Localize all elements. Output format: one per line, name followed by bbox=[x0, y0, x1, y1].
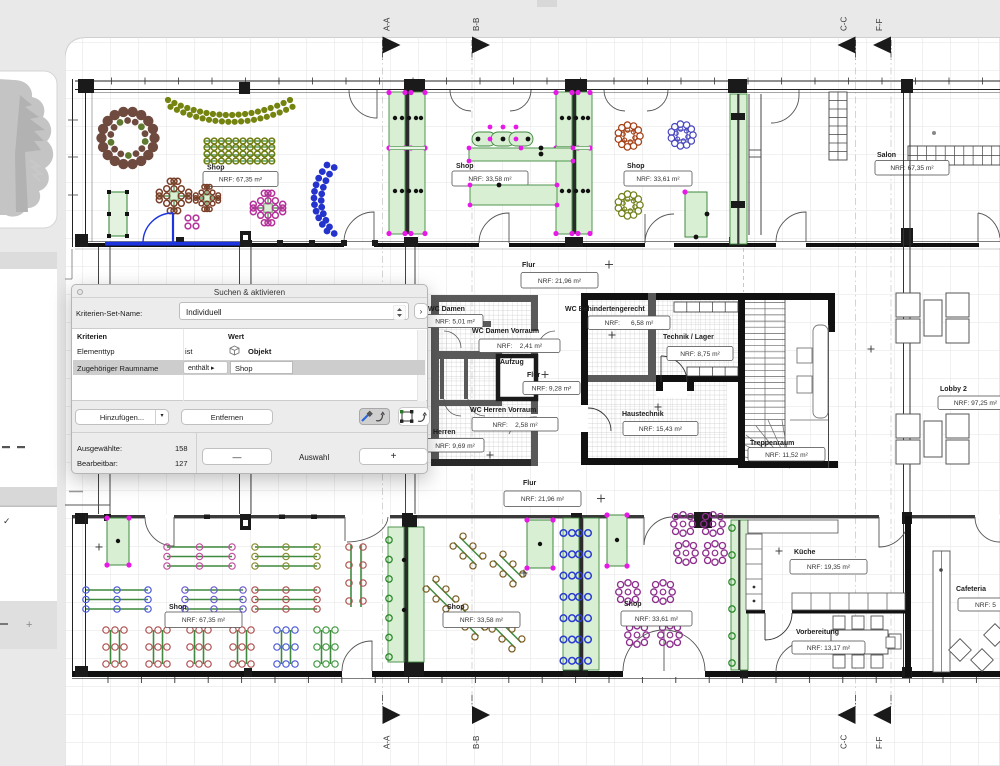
svg-text:NRF: 15,43 m²: NRF: 15,43 m² bbox=[639, 426, 683, 433]
svg-text:WC Behindertengerecht: WC Behindertengerecht bbox=[565, 306, 645, 313]
svg-text:Shop: Shop bbox=[624, 601, 642, 608]
svg-text:WC Damen Vorraum: WC Damen Vorraum bbox=[472, 328, 539, 335]
svg-text:Lobby 2: Lobby 2 bbox=[940, 386, 967, 393]
svg-text:NRF: 13,17 m²: NRF: 13,17 m² bbox=[807, 645, 851, 652]
svg-text:NRF: 97,25 m²: NRF: 97,25 m² bbox=[954, 400, 998, 407]
svg-text:Flur: Flur bbox=[522, 262, 535, 269]
svg-text:Salon: Salon bbox=[877, 152, 896, 159]
svg-text:F-F: F-F bbox=[875, 18, 884, 31]
svg-text:NRF: 67,35 m²: NRF: 67,35 m² bbox=[890, 165, 934, 172]
svg-text:NRF: 9,28 m²: NRF: 9,28 m² bbox=[532, 386, 572, 393]
svg-text:Küche: Küche bbox=[794, 549, 816, 556]
svg-text:C-C: C-C bbox=[840, 735, 849, 749]
svg-text:NRF: 2,58 m²: NRF: 2,58 m² bbox=[492, 422, 538, 429]
svg-text:NRF: 67,35 m²: NRF: 67,35 m² bbox=[182, 617, 226, 624]
svg-text:A-A: A-A bbox=[383, 17, 392, 31]
svg-text:NRF: 9,69 m²: NRF: 9,69 m² bbox=[435, 443, 475, 450]
svg-text:+: + bbox=[26, 619, 32, 631]
svg-text:Flur: Flur bbox=[527, 372, 540, 379]
svg-text:Vorbereitung: Vorbereitung bbox=[796, 629, 839, 636]
svg-text:Shop: Shop bbox=[456, 163, 474, 170]
svg-text:B-B: B-B bbox=[472, 736, 481, 749]
svg-text:F-F: F-F bbox=[875, 736, 884, 749]
svg-text:Shop: Shop bbox=[627, 163, 645, 170]
svg-text:B-B: B-B bbox=[472, 18, 481, 31]
svg-text:NRF: 33,61 m²: NRF: 33,61 m² bbox=[636, 176, 680, 183]
svg-text:✓: ✓ bbox=[3, 516, 11, 526]
svg-text:NRF: 11,52 m²: NRF: 11,52 m² bbox=[765, 452, 809, 459]
svg-text:Shop: Shop bbox=[169, 604, 187, 611]
svg-text:NRF: 19,35 m²: NRF: 19,35 m² bbox=[807, 564, 851, 571]
svg-text:Treppenraum: Treppenraum bbox=[750, 440, 794, 447]
svg-text:Shop: Shop bbox=[447, 604, 465, 611]
svg-text:Aufzug: Aufzug bbox=[500, 359, 524, 366]
svg-text:NRF: 5,01 m²: NRF: 5,01 m² bbox=[435, 319, 475, 326]
svg-text:Technik / Lager: Technik / Lager bbox=[663, 334, 714, 341]
svg-text:Herren: Herren bbox=[433, 429, 456, 436]
svg-text:NRF: 21,96 m²: NRF: 21,96 m² bbox=[538, 278, 582, 285]
svg-text:Flur: Flur bbox=[523, 480, 536, 487]
svg-text:WC Herren Vorraum: WC Herren Vorraum bbox=[470, 407, 536, 414]
svg-text:C-C: C-C bbox=[840, 17, 849, 31]
svg-text:Haustechnik: Haustechnik bbox=[622, 411, 664, 418]
svg-text:Cafeteria: Cafeteria bbox=[956, 586, 986, 593]
svg-text:WC Damen: WC Damen bbox=[428, 306, 465, 313]
svg-text:NRF: 5: NRF: 5 bbox=[975, 602, 996, 609]
svg-text:A-A: A-A bbox=[383, 735, 392, 749]
svg-text:NRF: 2,41 m²: NRF: 2,41 m² bbox=[497, 343, 543, 350]
svg-text:NRF: 67,35 m²: NRF: 67,35 m² bbox=[219, 177, 263, 184]
svg-text:NRF: 21,96 m²: NRF: 21,96 m² bbox=[521, 496, 565, 503]
svg-text:Shop: Shop bbox=[207, 165, 225, 172]
svg-text:NRF: 33,61 m²: NRF: 33,61 m² bbox=[635, 616, 679, 623]
svg-text:NRF: 33,58 m²: NRF: 33,58 m² bbox=[460, 617, 504, 624]
svg-text:NRF: 6,58 m²: NRF: 6,58 m² bbox=[605, 320, 655, 327]
svg-text:NRF: 33,58 m²: NRF: 33,58 m² bbox=[468, 176, 512, 183]
svg-text:NRF: 8,75 m²: NRF: 8,75 m² bbox=[680, 351, 720, 358]
